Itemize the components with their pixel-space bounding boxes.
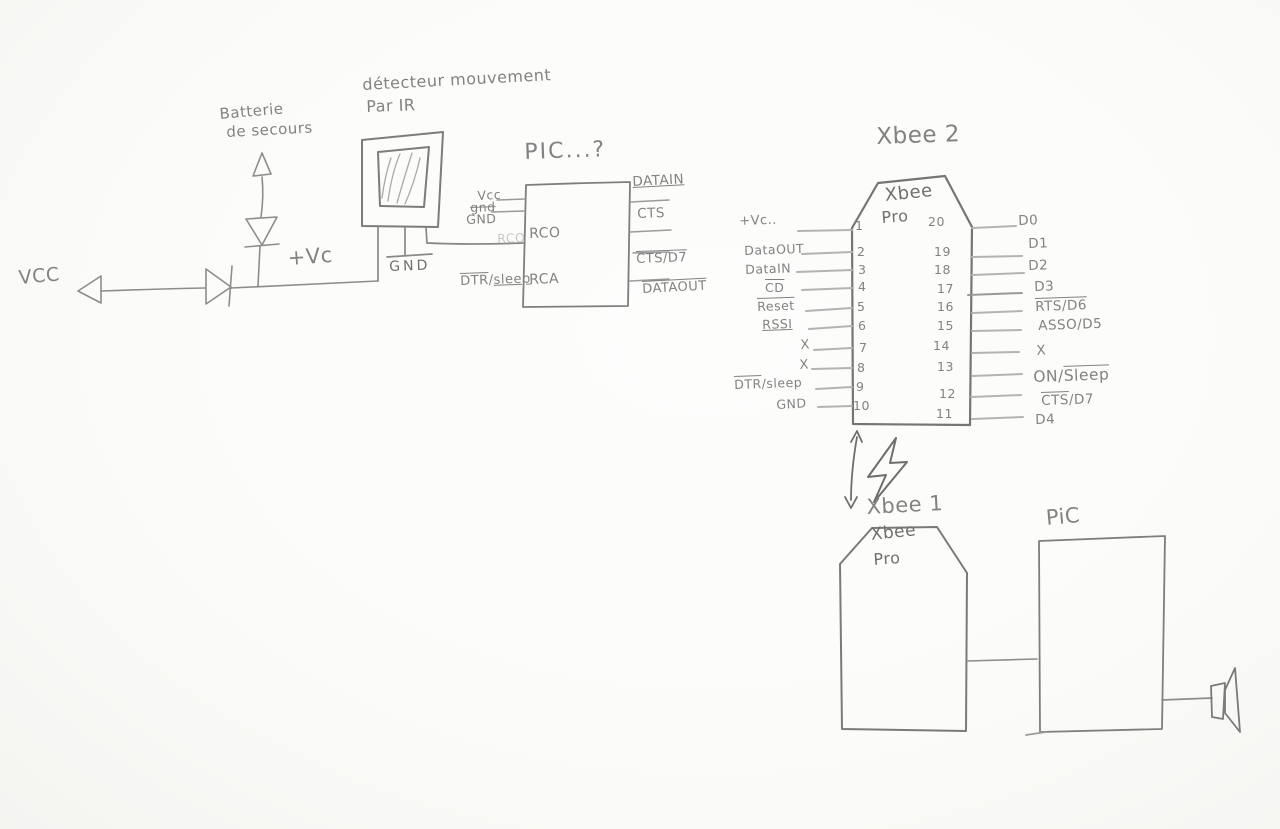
xbee2-pin-label-asso-d5: ASSO/D5	[1038, 317, 1103, 333]
gnd-bar	[387, 254, 432, 257]
pic2-chip	[1026, 536, 1165, 735]
detector-outer-box	[362, 132, 443, 227]
pic1-pin-gnd: GND	[466, 212, 497, 226]
xbee2-pin-num: 15	[937, 319, 954, 332]
detector-lens-waves	[382, 153, 420, 204]
xbee2-pin-label-nc8: X	[799, 358, 809, 372]
pic2-box	[1039, 536, 1165, 732]
schematic-canvas: VCC +Vc Batterie de secours détecteur mo…	[0, 0, 1280, 829]
pic1-pin-cts-d7: CTS/D7	[636, 251, 687, 266]
xbee2-left-pin-lines	[797, 230, 852, 407]
xbee2-chip	[797, 176, 1024, 425]
speaker	[1162, 668, 1240, 732]
xbee2-pin-label-reset: Reset	[757, 299, 795, 313]
wire-vcc-to-diode	[101, 288, 205, 291]
xbee2-d7-part: /D7	[1069, 391, 1095, 408]
xbee2-pin-num: 7	[859, 341, 867, 354]
xbee2-pin-label-cts-d7: CTS/D7	[1041, 392, 1094, 408]
xbee2-pin-num: 17	[937, 282, 954, 295]
wire-pic2-to-speaker	[1162, 698, 1212, 700]
wire-battery-upper	[261, 177, 263, 217]
xbee2-pin-label-cd: CD	[765, 281, 784, 294]
xbee2-pin-label-datain: DataIN	[745, 261, 791, 276]
xbee2-pin-num: 14	[933, 339, 950, 352]
xbee2-sleep13-part: Sleep	[1063, 365, 1109, 385]
wire-diode-to-detector	[231, 281, 378, 288]
pic2-bottom-stray	[1026, 732, 1046, 735]
wire-xbee1-to-pic2	[967, 659, 1037, 661]
xbee2-pin-label-dataout: DataOUT	[744, 242, 804, 257]
xbee2-pin-label-rts-d6: RTS/D6	[1035, 298, 1087, 314]
xbee1-chip-model: Pro	[873, 550, 901, 569]
xbee2-pin-label-nc14: X	[1036, 343, 1047, 358]
power-rail	[78, 266, 378, 306]
xbee2-on-part: ON/	[1033, 367, 1064, 386]
xbee1-title: Xbee 1	[866, 492, 944, 518]
pic1-pin-dataout: DATAOUT	[642, 280, 707, 297]
xbee2-pin-num: 4	[858, 280, 866, 293]
pic1-title: PIC...?	[524, 138, 607, 164]
xbee1-chip	[840, 527, 967, 731]
xbee2-pin-num: 13	[937, 360, 954, 373]
diode-icon	[206, 269, 231, 304]
xbee2-pin-num: 11	[936, 407, 953, 420]
xbee1-body	[840, 527, 967, 731]
speaker-cone-icon	[1225, 668, 1240, 732]
xbee2-pin-num: 20	[928, 215, 945, 228]
xbee2-pin-num: 1	[855, 219, 863, 232]
detector-title-line2: Par IR	[366, 97, 416, 116]
xbee2-pin-num: 19	[934, 245, 951, 258]
xbee2-pin-label-d1: D1	[1028, 236, 1048, 251]
wire-battery-lower	[258, 246, 260, 286]
xbee2-pin-label-gnd: GND	[776, 396, 807, 411]
pic1-pin-dtr-sleep: DTR/sleep	[460, 273, 531, 289]
xbee2-pin-label-dtr-sleep: DTR/sleep	[734, 376, 802, 391]
pic1-inner-rca: RCA	[529, 272, 559, 288]
xbee2-title: Xbee 2	[876, 122, 960, 149]
link-arrow-line	[851, 437, 857, 500]
diode-icon	[246, 217, 277, 245]
schematic-linework	[0, 0, 1280, 829]
xbee2-right-pin-lines	[968, 226, 1024, 419]
pic1-pin-rco-erased: RCO	[497, 231, 526, 245]
xbee2-pin-label-vcc: +Vc..	[739, 214, 777, 229]
xbee2-pin-num: 6	[858, 319, 866, 332]
xbee2-pin-num: 5	[857, 300, 865, 313]
xbee2-pin-num: 16	[937, 300, 954, 313]
vcc-arrow-icon	[78, 276, 101, 303]
pic1-pin-cts: CTS	[637, 206, 665, 221]
pic1-pin-datain: DATAIN	[632, 172, 685, 189]
xbee2-pin-num: 2	[857, 245, 865, 258]
xbee2-sleep-part: /sleep	[761, 375, 802, 391]
pic1-sleep-part: sleep	[493, 272, 531, 288]
xbee2-pin-label-d0: D0	[1018, 213, 1038, 228]
pic1-inner-rco: RCO	[529, 226, 561, 242]
xbee2-dtr-part: DTR	[734, 376, 762, 392]
xbee2-pin-num: 9	[856, 380, 864, 393]
xbee2-pin-label-d2: D2	[1028, 258, 1048, 273]
detector-leg-out	[426, 228, 427, 243]
pic2-title: PiC	[1045, 504, 1081, 529]
xbee2-pin-label-nc7: X	[800, 338, 810, 352]
xbee2-pin-label-d4: D4	[1035, 412, 1055, 427]
ir-detector	[362, 132, 523, 281]
xbee2-pin-label-rssi: RSSI	[762, 317, 793, 331]
xbee2-pin-num: 3	[858, 263, 866, 276]
detector-gnd-label: GND	[389, 259, 431, 275]
battery-arrow-icon	[253, 153, 271, 176]
speaker-driver	[1211, 683, 1225, 719]
xbee2-pin-num: 18	[934, 263, 951, 276]
xbee2-pin-label-on-sleep: ON/Sleep	[1033, 366, 1110, 385]
battery-branch	[245, 153, 279, 286]
pic1-box	[523, 182, 630, 307]
xbee2-pin-num: 8	[857, 361, 865, 374]
xbee2-pin-num: 12	[939, 387, 956, 400]
xbee2-pin-num: 10	[853, 399, 870, 412]
xbee2-chip-model: Pro	[881, 208, 909, 227]
pic1-dtr-part: DTR	[460, 273, 489, 289]
xbee2-pin-label-d3: D3	[1034, 279, 1054, 294]
plus-vc-label: +Vc	[287, 244, 333, 269]
vcc-label: VCC	[18, 265, 61, 288]
xbee2-cts-part: CTS	[1041, 392, 1069, 409]
